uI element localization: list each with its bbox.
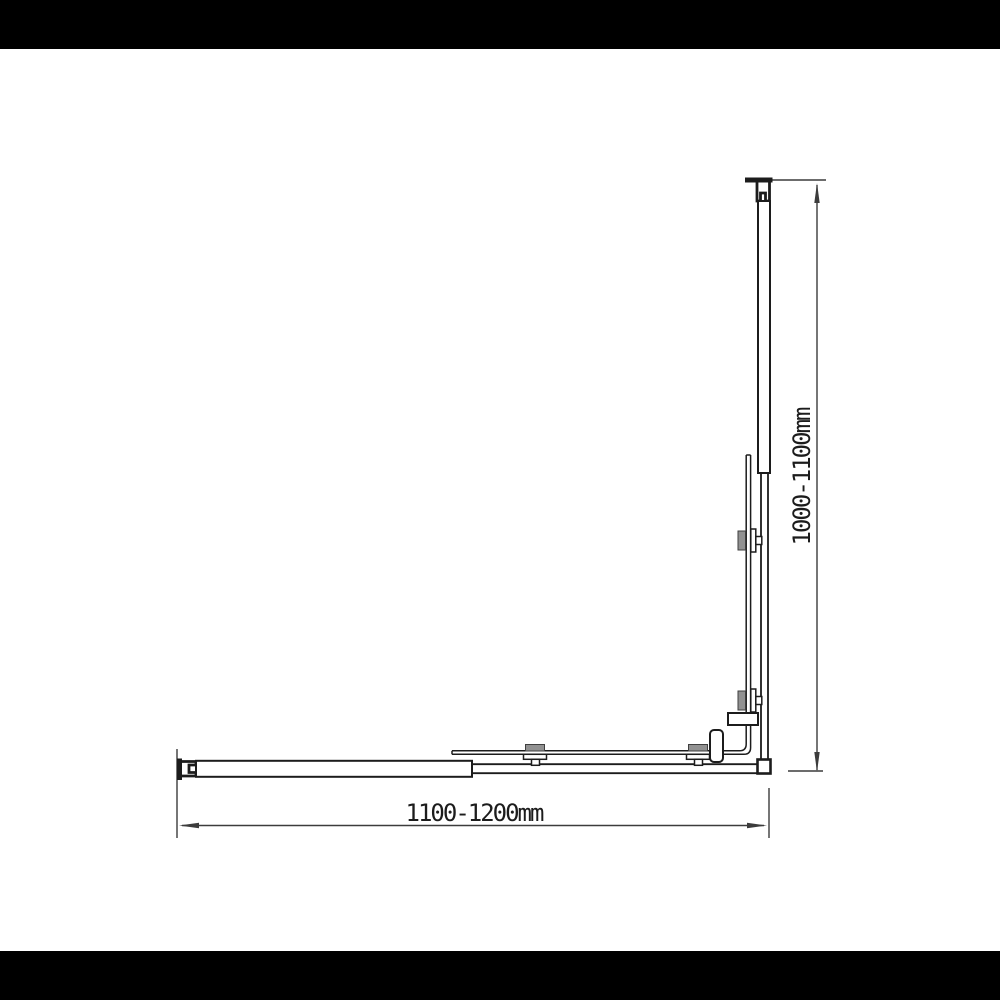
clamp-pad: [526, 745, 545, 752]
corner-support-arm: [728, 713, 758, 725]
top-wall-profile-body: [757, 182, 770, 201]
top-wall-profile-flange: [745, 178, 773, 183]
arrow-left-icon: [179, 823, 199, 828]
left-wall-profile-flange: [177, 759, 182, 781]
clamp-pad: [689, 745, 708, 752]
technical-drawing: [0, 0, 1000, 1000]
sliding-panel-outer-line: [452, 455, 751, 754]
horizontal-panel-clamp-right: [687, 745, 710, 766]
clamp-pad: [738, 531, 746, 550]
left-wall-profile-body: [182, 762, 196, 777]
vertical-fixed-panel: [758, 201, 770, 473]
height-dimension-label: 1000-1100mm: [788, 409, 816, 546]
clamp-stem: [756, 697, 762, 705]
diagram-page: 1100-1200mm 1000-1100mm: [0, 0, 1000, 1000]
arrow-up-icon: [814, 183, 819, 203]
sliding-panel-inner-line: [452, 455, 746, 751]
horizontal-panel-clamp-left: [524, 745, 547, 766]
arrow-down-icon: [814, 752, 819, 772]
corner-connector-block: [758, 760, 771, 774]
clamp-stem: [756, 537, 762, 545]
horizontal-fixed-panel: [196, 761, 472, 777]
arrow-right-icon: [747, 823, 767, 828]
width-dimension-label: 1100-1200mm: [359, 799, 589, 827]
door-knob: [710, 730, 723, 762]
clamp-stem: [532, 759, 540, 765]
vertical-panel-assembly: [452, 178, 773, 761]
clamp-stem: [695, 759, 703, 765]
clamp-pad: [738, 691, 746, 710]
